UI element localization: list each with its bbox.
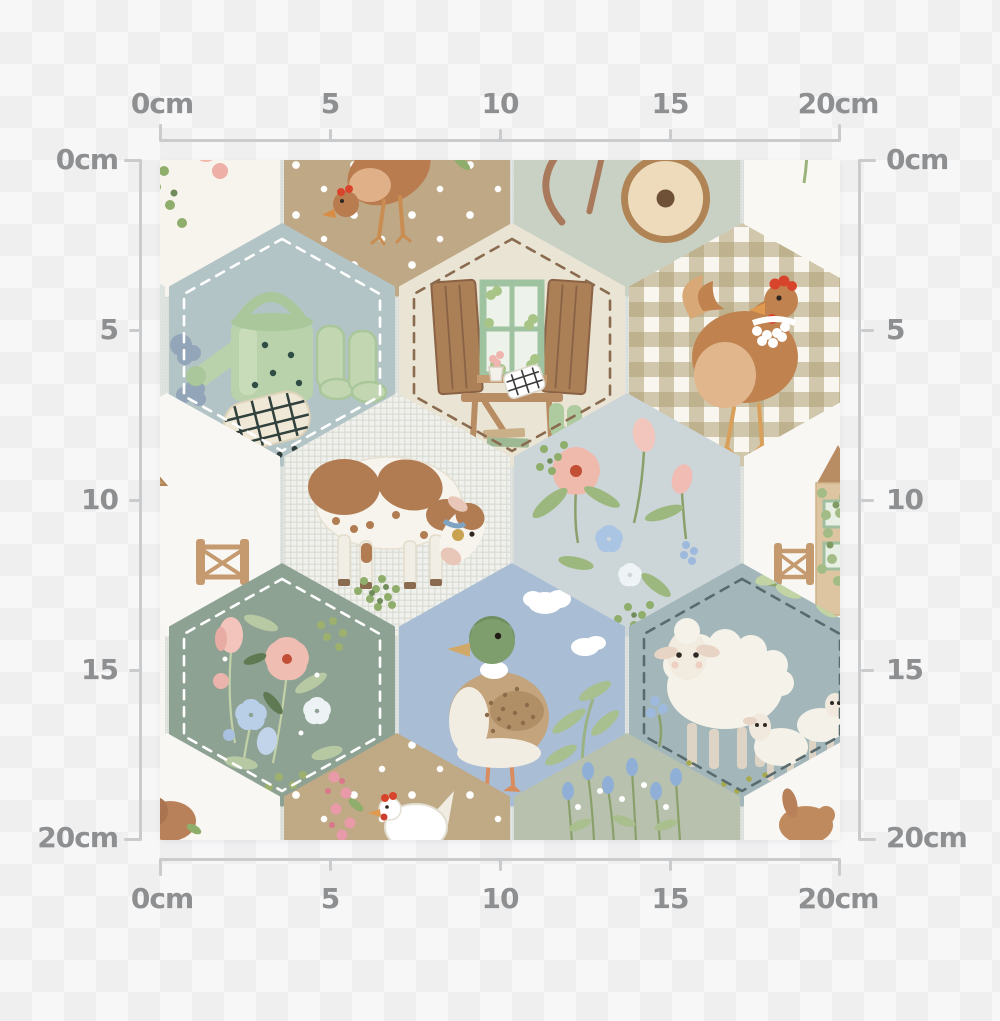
ruler-endcap — [838, 124, 841, 142]
ruler-tick — [861, 669, 874, 672]
ruler-endcap — [858, 159, 876, 162]
ruler-label: 10 — [0, 483, 118, 517]
ruler-label: 10 — [482, 87, 519, 121]
ruler-tick — [129, 499, 142, 502]
ruler-label: 5 — [321, 87, 339, 121]
ruler-endcap — [159, 858, 162, 876]
ruler-tick — [329, 129, 332, 142]
ruler-endcap — [858, 838, 876, 841]
ruler-tick — [129, 669, 142, 672]
ruler-label: 10 — [886, 483, 923, 517]
ruler-label: 20cm — [798, 882, 879, 916]
ruler-label: 5 — [0, 313, 118, 347]
ruler-endcap — [838, 858, 841, 876]
ruler-label: 10 — [482, 882, 519, 916]
ruler-tick — [499, 858, 502, 871]
ruler-label: 15 — [652, 882, 689, 916]
ruler-endcap — [124, 159, 142, 162]
ruler-tick — [861, 499, 874, 502]
ruler-label: 0cm — [0, 143, 118, 177]
ruler-endcap — [159, 124, 162, 142]
ruler-label: 15 — [652, 87, 689, 121]
ruler-label: 5 — [886, 313, 904, 347]
ruler-tick — [329, 858, 332, 871]
ruler-tick — [669, 858, 672, 871]
ruler-label: 0cm — [886, 143, 948, 177]
ruler-endcap — [124, 838, 142, 841]
ruler-label: 20cm — [0, 821, 118, 855]
ruler-tick — [499, 129, 502, 142]
ruler-tick — [861, 329, 874, 332]
ruler-label: 20cm — [886, 821, 967, 855]
ruler-label: 5 — [321, 882, 339, 916]
ruler-label: 15 — [0, 653, 118, 687]
ruler-label: 15 — [886, 653, 923, 687]
ruler-label: 20cm — [798, 87, 879, 121]
ruler-tick — [129, 329, 142, 332]
fabric-swatch — [160, 160, 840, 840]
ruler-tick — [669, 129, 672, 142]
ruler-label: 0cm — [131, 882, 193, 916]
ruler-label: 0cm — [131, 87, 193, 121]
